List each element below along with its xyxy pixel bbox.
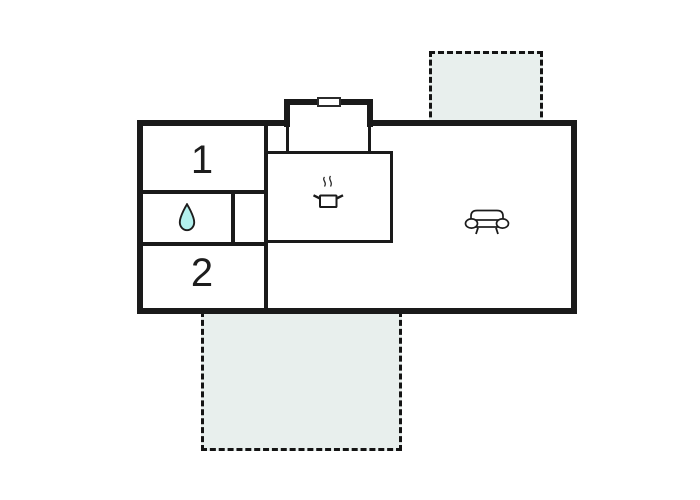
wall-bathroom-bottom [143,242,268,246]
bedroom2-label: 2 [180,252,224,294]
wall-bedroom1-bottom [143,190,268,194]
bedroom1-label: 1 [180,139,224,181]
floor-plan: 1 2 [0,0,700,500]
terrace-top-right [429,51,543,126]
wall-bathroom-closet-divider [231,190,235,246]
wall-vestibule-right [368,126,371,153]
water-drop-icon [177,203,197,232]
terrace-bottom [201,311,402,451]
sofa-icon [463,206,511,236]
wall-vestibule-left [286,126,289,153]
entrance-door [317,97,341,107]
cooking-pot-icon [310,174,346,210]
